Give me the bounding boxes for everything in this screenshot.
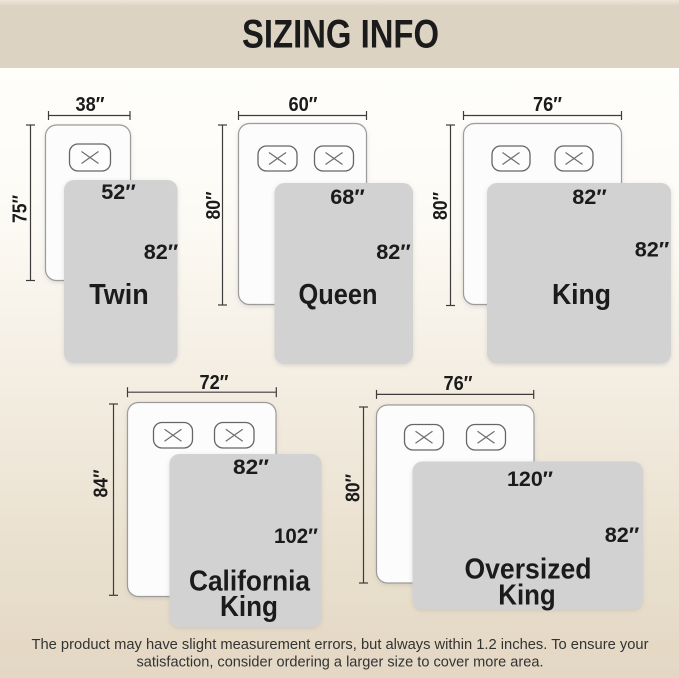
svg-text:82″: 82″ [605, 524, 640, 547]
svg-text:82″: 82″ [376, 241, 411, 264]
svg-text:satisfaction, consider orderin: satisfaction, consider ordering a larger… [137, 655, 544, 671]
svg-text:52″: 52″ [101, 181, 136, 204]
svg-text:Twin: Twin [89, 279, 149, 311]
svg-text:76″: 76″ [444, 373, 473, 395]
svg-text:38″: 38″ [76, 94, 105, 116]
svg-text:The product may have slight me: The product may have slight measurement … [32, 637, 649, 653]
svg-text:82″: 82″ [144, 241, 179, 264]
svg-text:82″: 82″ [233, 456, 269, 479]
svg-text:68″: 68″ [330, 186, 365, 209]
svg-text:King: King [220, 591, 278, 623]
svg-text:82″: 82″ [635, 239, 670, 262]
svg-text:82″: 82″ [572, 186, 607, 209]
svg-text:102″: 102″ [274, 525, 318, 548]
svg-text:SIZING INFO: SIZING INFO [242, 13, 439, 57]
svg-text:120″: 120″ [507, 468, 553, 491]
svg-text:King: King [498, 580, 556, 612]
svg-text:80″: 80″ [430, 192, 452, 220]
svg-text:60″: 60″ [289, 94, 318, 116]
svg-text:76″: 76″ [533, 94, 562, 116]
svg-text:80″: 80″ [203, 191, 225, 219]
svg-text:80″: 80″ [343, 474, 365, 502]
svg-text:72″: 72″ [200, 372, 229, 394]
svg-text:84″: 84″ [91, 469, 113, 497]
svg-text:75″: 75″ [10, 195, 32, 223]
svg-text:King: King [552, 279, 611, 311]
svg-text:Queen: Queen [299, 279, 378, 311]
